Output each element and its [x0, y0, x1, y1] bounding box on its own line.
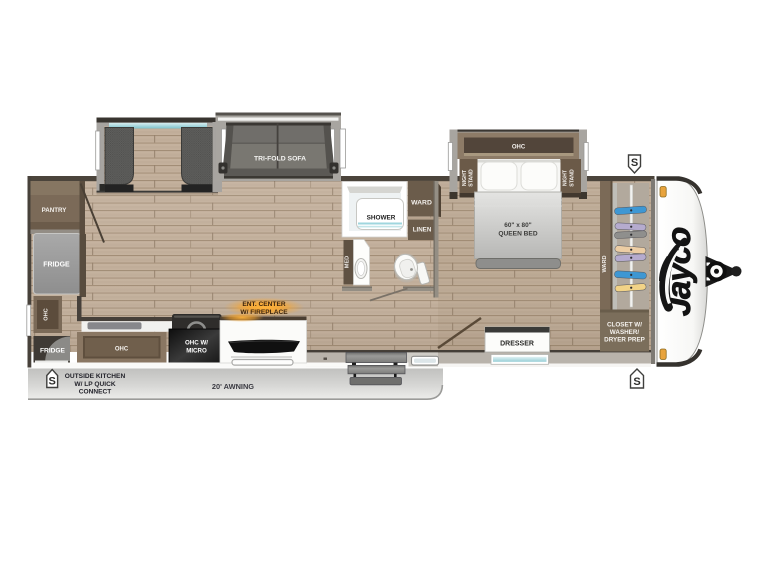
svg-text:FRIDGE: FRIDGE	[43, 262, 70, 269]
svg-text:TRI-FOLD SOFA: TRI-FOLD SOFA	[254, 156, 306, 163]
svg-text:CLOSET W/: CLOSET W/	[607, 322, 642, 329]
svg-text:STAND: STAND	[469, 169, 475, 187]
svg-text:NIGHT: NIGHT	[462, 169, 468, 186]
svg-text:PANTRY: PANTRY	[42, 207, 68, 214]
svg-text:MED: MED	[345, 256, 351, 268]
svg-text:OHC W/: OHC W/	[185, 340, 208, 347]
svg-text:ENT. CENTER: ENT. CENTER	[242, 301, 285, 308]
svg-text:W/ LP QUICK: W/ LP QUICK	[74, 381, 116, 388]
svg-text:CONNECT: CONNECT	[79, 389, 112, 396]
svg-text:WASHER/: WASHER/	[610, 329, 640, 336]
svg-text:SHOWER: SHOWER	[367, 215, 396, 222]
svg-text:STAND: STAND	[570, 169, 576, 187]
svg-text:LINEN: LINEN	[413, 227, 432, 234]
svg-text:S: S	[633, 376, 640, 388]
svg-text:WARD: WARD	[411, 200, 432, 207]
svg-text:OHC: OHC	[44, 308, 50, 320]
svg-text:NIGHT: NIGHT	[563, 169, 569, 186]
svg-text:20' AWNING: 20' AWNING	[212, 382, 254, 391]
svg-text:S: S	[631, 157, 638, 169]
svg-text:OHC: OHC	[512, 145, 526, 151]
svg-text:DRYER PREP: DRYER PREP	[604, 337, 645, 344]
svg-text:60" x 80": 60" x 80"	[504, 222, 531, 229]
svg-text:DRESSER: DRESSER	[500, 341, 534, 348]
svg-text:W/ FIREPLACE: W/ FIREPLACE	[240, 309, 288, 316]
svg-text:OUTSIDE KITCHEN: OUTSIDE KITCHEN	[65, 373, 126, 380]
svg-text:S: S	[49, 375, 56, 387]
svg-text:QUEEN BED: QUEEN BED	[498, 231, 537, 238]
svg-text:WARD: WARD	[602, 255, 608, 272]
svg-text:MICRO: MICRO	[186, 348, 207, 355]
svg-text:FRIDGE: FRIDGE	[40, 348, 66, 355]
svg-text:OHC: OHC	[115, 347, 129, 353]
